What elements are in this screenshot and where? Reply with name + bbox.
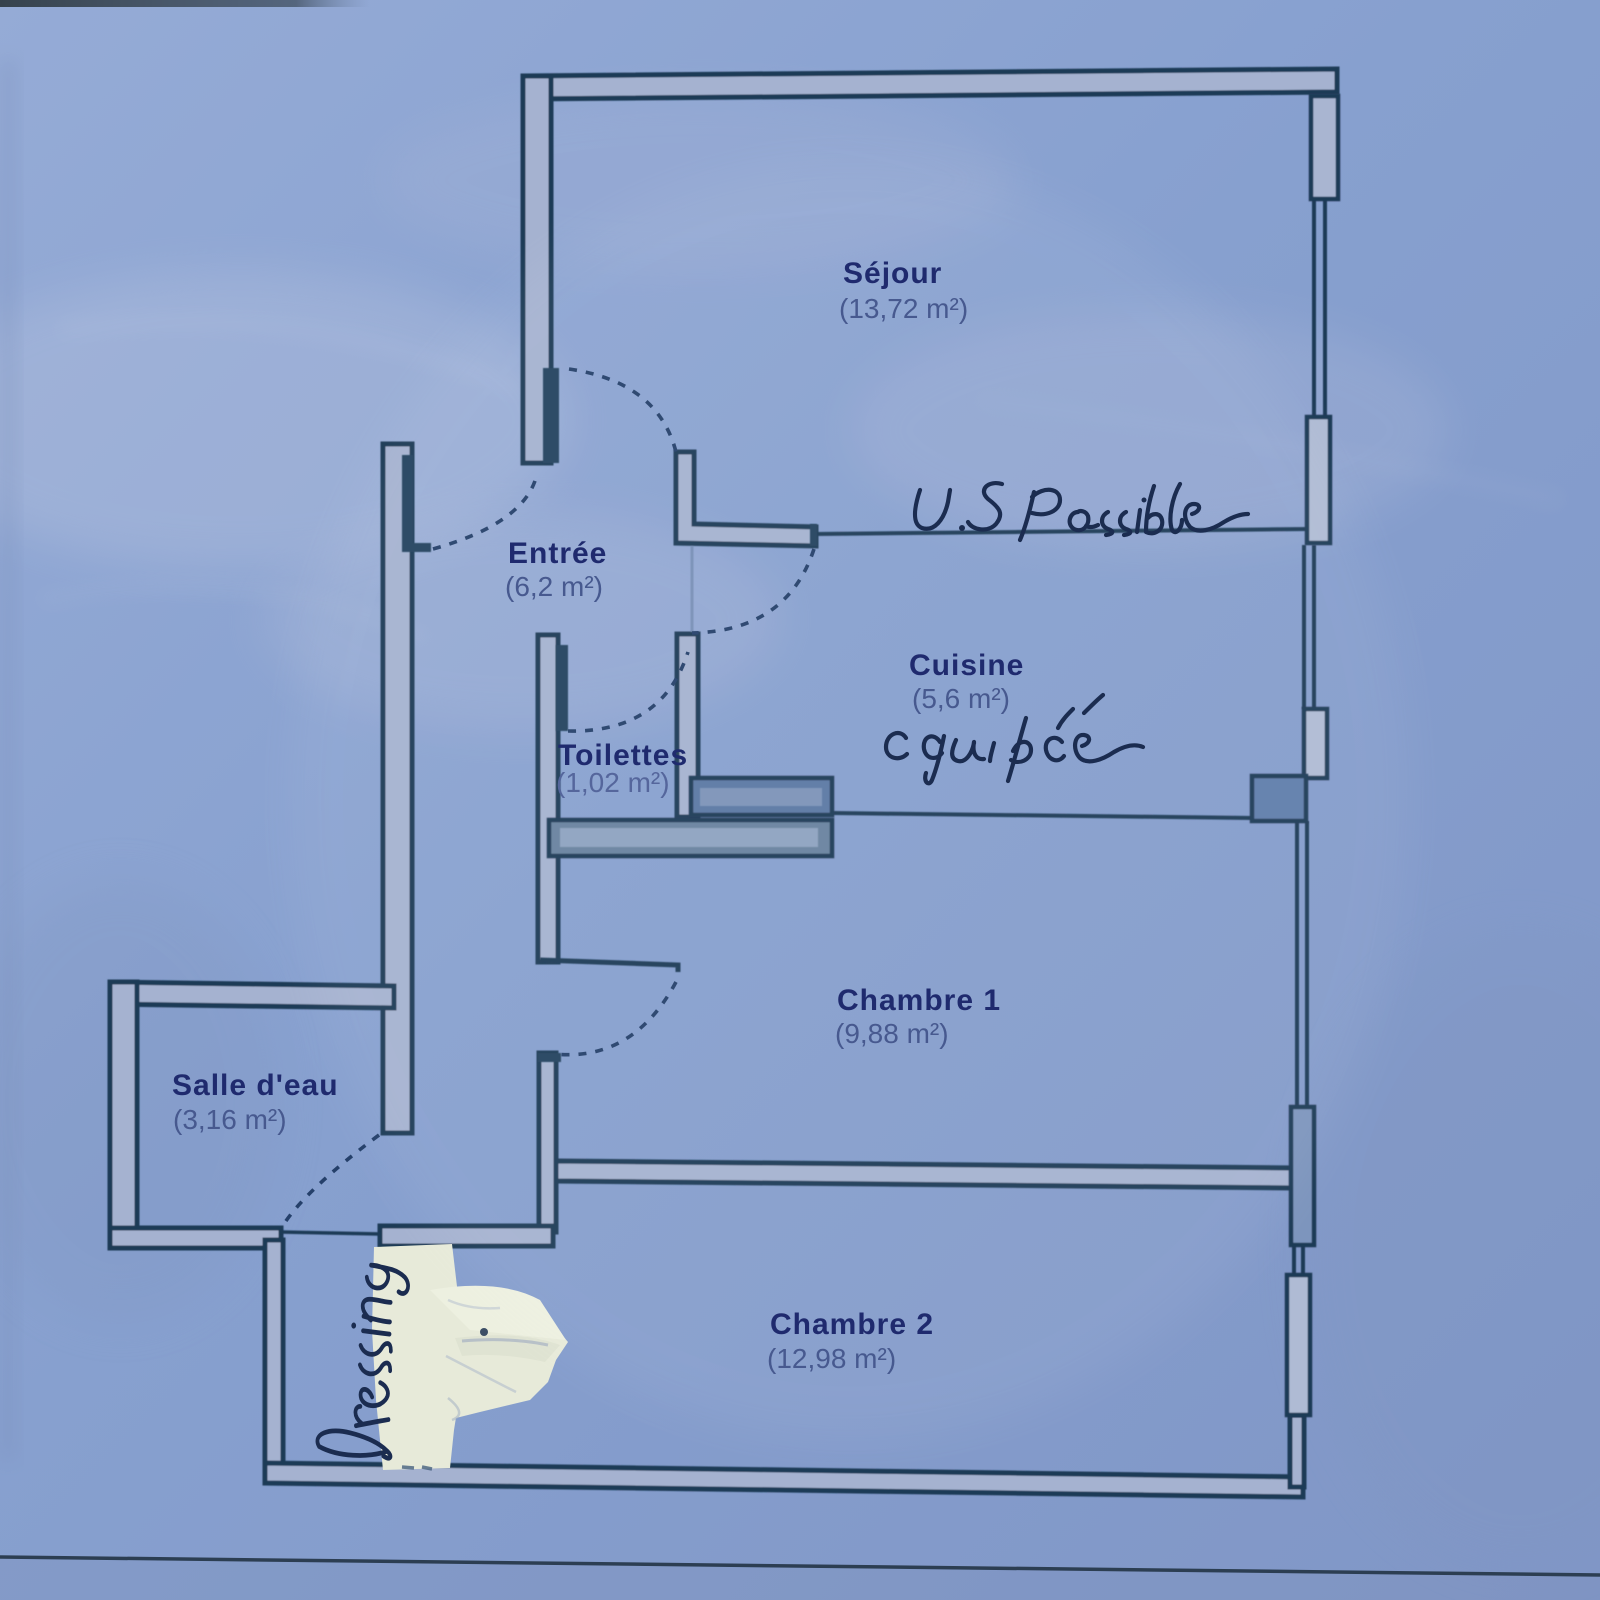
svg-text:(9,88 m²): (9,88 m²) (835, 1018, 949, 1049)
svg-text:(12,98 m²): (12,98 m²) (767, 1343, 896, 1374)
svg-text:(5,6 m²): (5,6 m²) (912, 683, 1010, 714)
svg-text:Chambre 1: Chambre 1 (837, 984, 1001, 1017)
svg-text:(1,02 m²): (1,02 m²) (556, 767, 670, 798)
svg-text:Entrée: Entrée (508, 537, 607, 570)
svg-text:(13,72 m²): (13,72 m²) (839, 293, 968, 324)
svg-text:(6,2 m²): (6,2 m²) (505, 571, 603, 602)
svg-text:Cuisine: Cuisine (909, 649, 1024, 682)
svg-text:Chambre 2: Chambre 2 (770, 1308, 934, 1341)
svg-text:Séjour: Séjour (843, 257, 942, 290)
svg-text:(3,16 m²): (3,16 m²) (173, 1104, 287, 1135)
svg-text:Salle d'eau: Salle d'eau (172, 1069, 339, 1102)
